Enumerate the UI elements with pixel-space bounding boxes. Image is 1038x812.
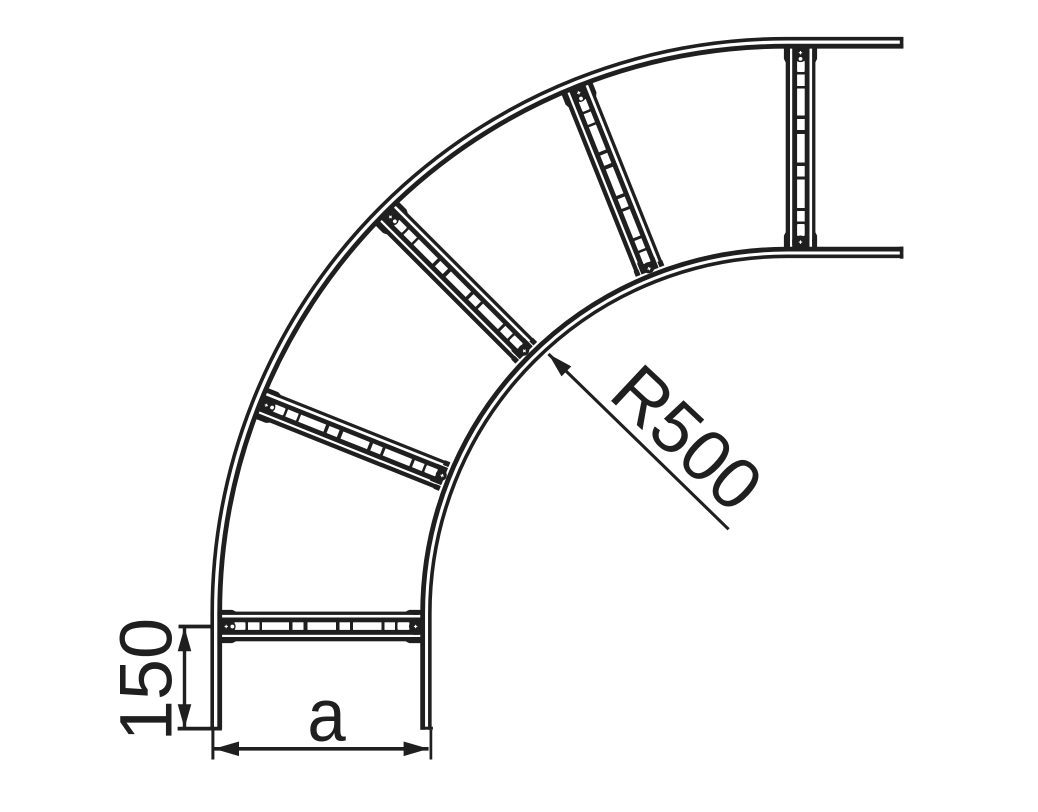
svg-text:a: a bbox=[307, 674, 346, 757]
svg-text:150: 150 bbox=[105, 618, 188, 741]
